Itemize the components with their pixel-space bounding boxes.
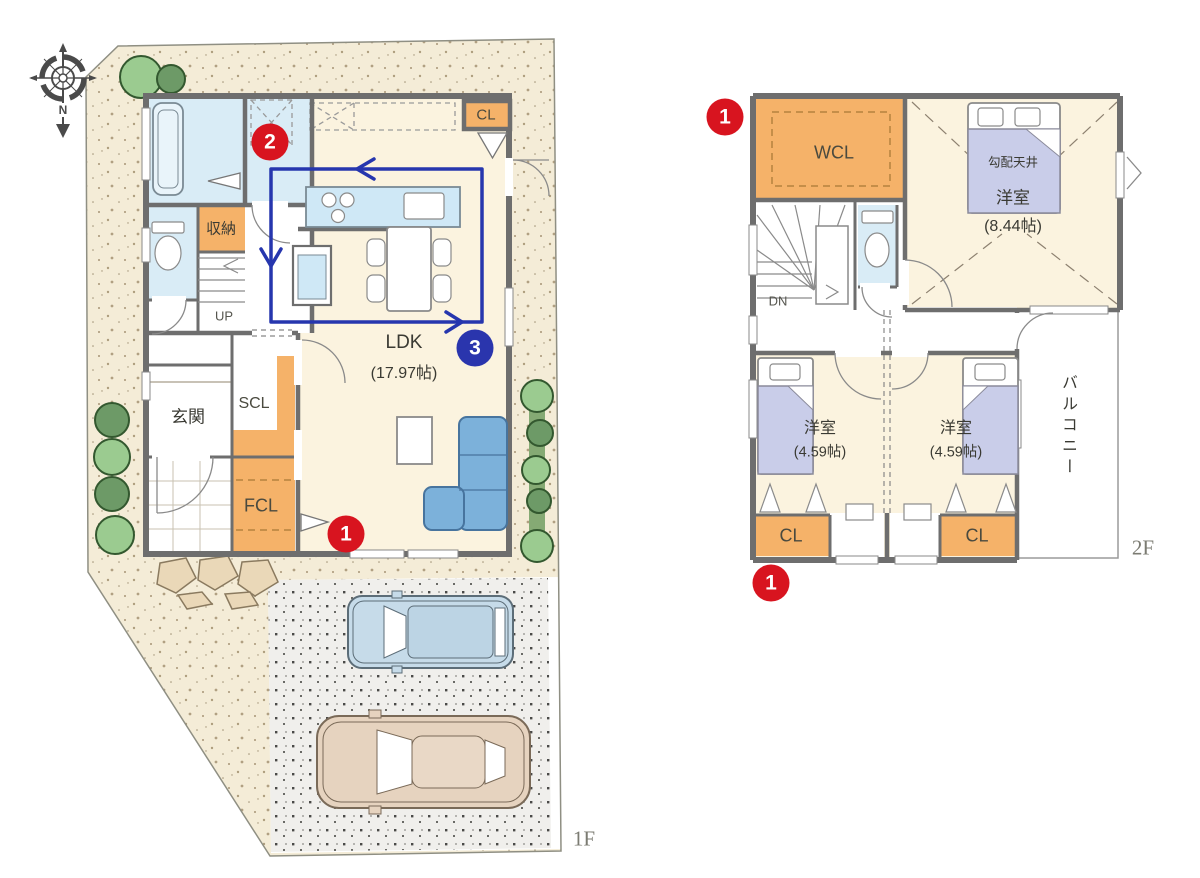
label-entrance: 玄関 bbox=[171, 403, 205, 428]
marker-point-2: 2 bbox=[252, 124, 289, 161]
label-bedroom-left-size: (4.59帖) bbox=[794, 441, 846, 462]
building-1f bbox=[142, 96, 549, 558]
label-main-bedroom-size: (8.44帖) bbox=[984, 212, 1042, 236]
window bbox=[1116, 152, 1124, 198]
tree-icon bbox=[527, 420, 553, 446]
chair bbox=[367, 275, 385, 302]
label-main-bedroom-name: 洋室 bbox=[996, 184, 1030, 209]
floor2-label: 2F bbox=[1132, 536, 1154, 561]
marker-point-3: 3 bbox=[457, 330, 494, 367]
label-closet-left: CL bbox=[779, 526, 802, 547]
tree-icon bbox=[96, 516, 134, 554]
tree-icon bbox=[521, 530, 553, 562]
stove-burner-icon bbox=[322, 193, 336, 207]
toilet-1f bbox=[152, 222, 184, 270]
stove-burner-icon bbox=[332, 210, 345, 223]
chair bbox=[367, 239, 385, 266]
car-roof bbox=[408, 606, 493, 658]
minivan bbox=[348, 591, 513, 673]
car-roof bbox=[412, 736, 485, 788]
shoe-closet-strip bbox=[232, 430, 295, 457]
window-marker-icon bbox=[1127, 157, 1141, 189]
hall-2f bbox=[753, 307, 1017, 353]
label-bedroom-left-name: 洋室 bbox=[804, 414, 836, 438]
tree-icon bbox=[120, 56, 162, 98]
floor-plan-drawing bbox=[0, 0, 1200, 878]
car-mirror bbox=[392, 591, 402, 598]
label-shoe-closet: SCL bbox=[238, 395, 269, 413]
desk bbox=[846, 504, 873, 520]
window bbox=[749, 225, 757, 275]
label-closet-1f: CL bbox=[476, 107, 495, 124]
label-bedroom-right-size: (4.59帖) bbox=[930, 441, 982, 462]
window bbox=[836, 556, 878, 564]
label-ldk-size: (17.97帖) bbox=[371, 359, 438, 383]
window bbox=[505, 288, 513, 346]
window bbox=[895, 556, 937, 564]
coffee-table bbox=[397, 417, 432, 464]
floor-plan-canvas: N 収納 UP CL 玄関 SCL FCL LDK (17.97帖) 1F 2 … bbox=[0, 0, 1200, 878]
chair bbox=[433, 239, 451, 266]
window bbox=[1030, 306, 1108, 314]
tree-icon bbox=[94, 439, 130, 475]
pillow bbox=[770, 364, 800, 380]
car-mirror bbox=[392, 666, 402, 673]
tree-icon bbox=[157, 65, 185, 93]
refrigerator bbox=[293, 246, 331, 305]
floor1-label: 1F bbox=[573, 827, 595, 852]
label-bedroom-right-name: 洋室 bbox=[940, 414, 972, 438]
kitchen-sink bbox=[404, 193, 444, 219]
compass-north-label: N bbox=[57, 103, 70, 117]
window bbox=[142, 108, 150, 180]
chair bbox=[433, 275, 451, 302]
label-balcony: バルコニー bbox=[1055, 374, 1079, 479]
window bbox=[142, 228, 150, 262]
label-closet-right: CL bbox=[965, 526, 988, 547]
car-mirror bbox=[369, 710, 381, 718]
marker-point-1-top: 1 bbox=[707, 99, 744, 136]
shoe-closet-strip bbox=[277, 356, 295, 432]
dining-table bbox=[387, 227, 431, 311]
label-sloped-ceiling: 勾配天井 bbox=[988, 152, 1038, 171]
window bbox=[749, 380, 757, 438]
label-stairs-up: UP bbox=[215, 309, 233, 324]
label-storage: 収納 bbox=[206, 218, 236, 239]
tree-icon bbox=[95, 477, 129, 511]
building-2f bbox=[749, 96, 1141, 564]
pillow bbox=[975, 364, 1005, 380]
window bbox=[408, 550, 458, 558]
marker-point-1-bottom: 1 bbox=[753, 565, 790, 602]
tree-icon bbox=[522, 456, 550, 484]
tree-icon bbox=[527, 489, 551, 513]
label-walkin-closet: WCL bbox=[814, 143, 854, 164]
windshield bbox=[377, 730, 412, 794]
desk bbox=[904, 504, 931, 520]
stove-burner-icon bbox=[340, 193, 354, 207]
tree-icon bbox=[521, 380, 553, 412]
label-ldk-name: LDK bbox=[386, 332, 423, 354]
sedan bbox=[317, 710, 530, 814]
car-mirror bbox=[369, 806, 381, 814]
rear-window bbox=[485, 740, 505, 784]
tree-icon bbox=[95, 403, 129, 437]
pillow bbox=[978, 108, 1003, 126]
rear-window bbox=[495, 608, 505, 656]
window bbox=[142, 372, 150, 400]
window bbox=[350, 550, 404, 558]
label-stairs-down: DN bbox=[769, 294, 788, 309]
window bbox=[749, 316, 757, 344]
marker-point-1: 1 bbox=[328, 516, 365, 553]
pillow bbox=[1015, 108, 1040, 126]
kitchen-counter bbox=[306, 187, 460, 227]
label-family-closet: FCL bbox=[244, 496, 278, 517]
